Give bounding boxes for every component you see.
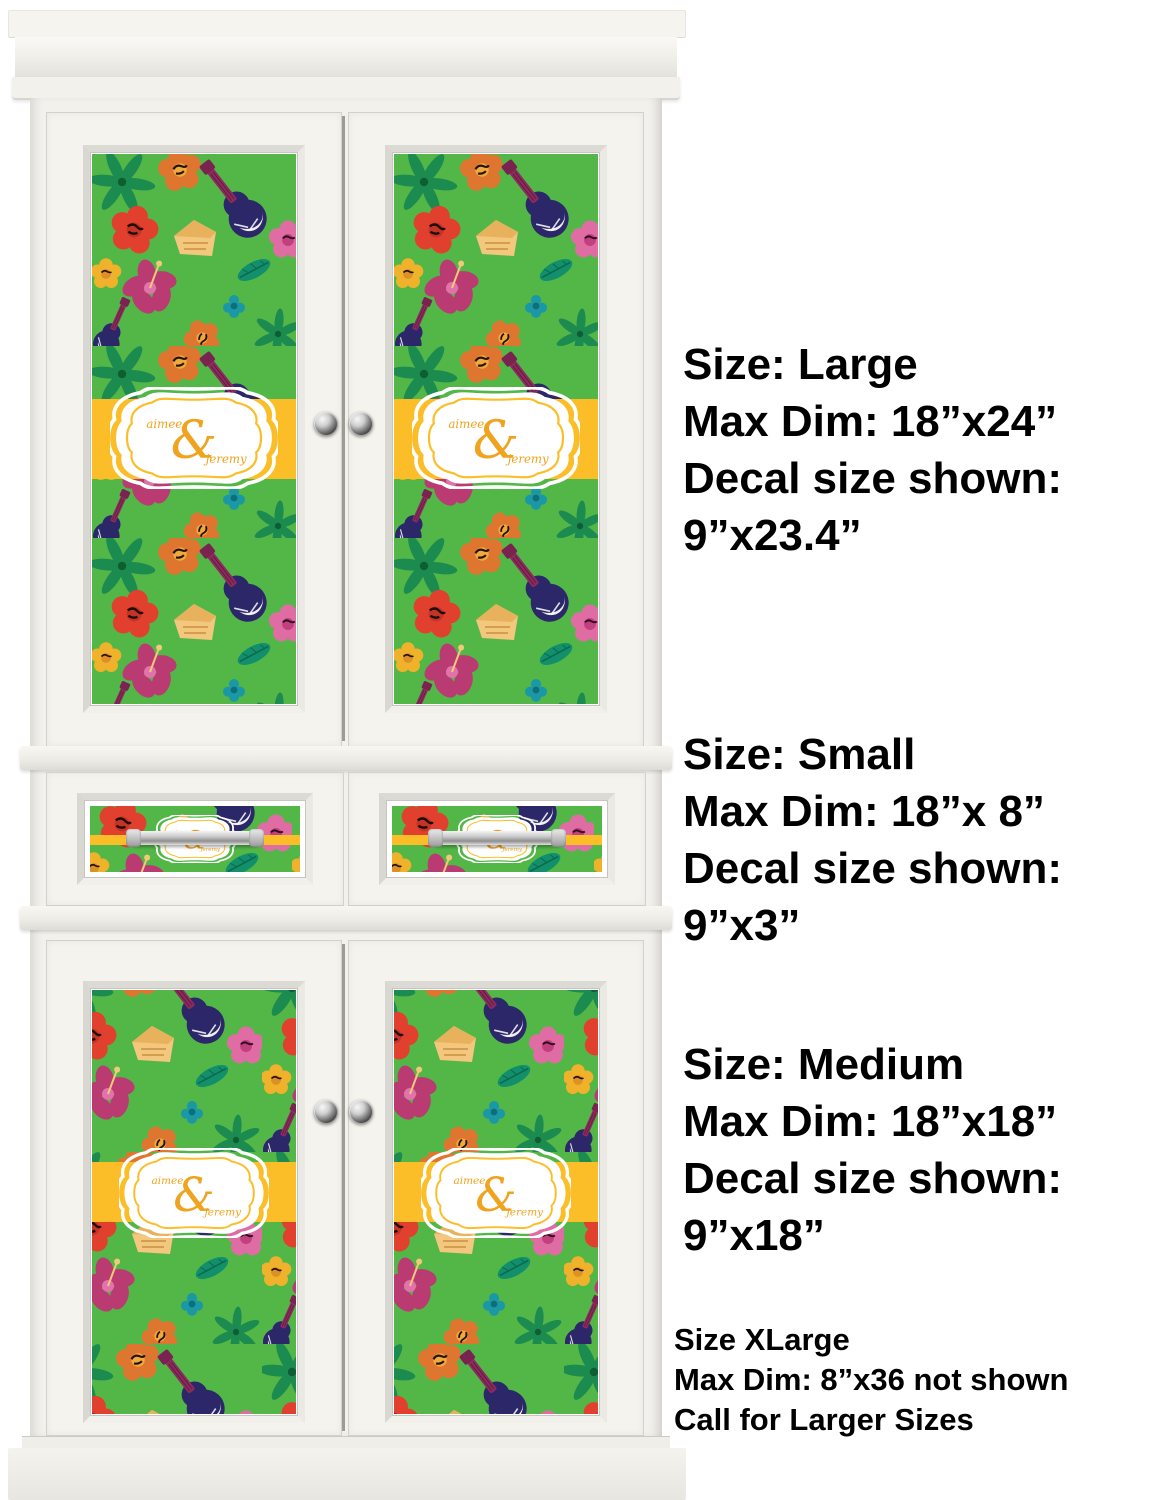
left-drawer: aimee & jeremy [46,772,344,906]
right-drawer: aimee & jeremy [348,772,646,906]
mid-rail-molding [20,746,672,770]
door-knob [349,1100,373,1124]
size-label: Size XLarge [674,1320,1068,1360]
decal-medium-right: aimee & jeremy [394,990,598,1414]
badge-second-name: jeremy [501,847,523,853]
crown-molding-cove [15,37,677,77]
badge-second-name: jeremy [505,452,549,466]
name-badge: aimee & jeremy [119,1148,269,1238]
size-annotation-large: Size: Large Max Dim: 18”x24” Decal size … [683,336,1062,564]
size-label: Size: Large [683,336,1062,393]
decal-large-left: aimee & jeremy [92,154,296,704]
upper-left-door: aimee & jeremy [46,112,342,747]
decal-size-shown-label: Decal size shown: [683,450,1062,507]
drawer-pull [431,831,563,845]
crown-molding-top [8,10,686,38]
decal-size-shown-label: Decal size shown: [683,840,1062,897]
lower-right-door: aimee & jeremy [348,940,644,1436]
decal-size-value: 9”x23.4” [683,507,1062,564]
decal-size-value: 9”x18” [683,1207,1062,1264]
upper-door-gap [342,116,345,741]
door-knob [314,412,338,436]
badge-second-name: jeremy [203,1207,243,1219]
size-annotation-xlarge: Size XLarge Max Dim: 8”x36 not shown Cal… [674,1320,1068,1440]
lower-door-gap [342,944,345,1431]
crown-molding-lip [12,77,680,100]
decal-medium-left: aimee & jeremy [92,990,296,1414]
door-knob [314,1100,338,1124]
name-badge: aimee & jeremy [412,387,580,489]
size-label: Size: Small [683,726,1062,783]
lower-right-door-panel: aimee & jeremy [385,981,607,1423]
door-knob [349,412,373,436]
name-badge: aimee & jeremy [421,1148,571,1238]
decal-large-right: aimee & jeremy [394,154,598,704]
lower-left-door: aimee & jeremy [46,940,342,1436]
lower-rail-molding [20,906,672,930]
max-dim: Max Dim: 18”x 8” [683,783,1062,840]
upper-right-door: aimee & jeremy [348,112,644,747]
badge-second-name: jeremy [203,452,247,466]
drawer-pull [129,831,261,845]
name-badge: aimee & jeremy [110,387,278,489]
badge-second-name: jeremy [505,1207,545,1219]
max-dim: Max Dim: 18”x18” [683,1093,1062,1150]
size-annotation-small: Size: Small Max Dim: 18”x 8” Decal size … [683,726,1062,954]
call-for-larger-sizes: Call for Larger Sizes [674,1400,1068,1440]
upper-left-door-panel: aimee & jeremy [83,145,305,713]
product-size-illustration: aimee & jeremy aimee & jeremy [0,0,1151,1500]
max-dim: Max Dim: 8”x36 not shown [674,1360,1068,1400]
badge-second-name: jeremy [199,847,221,853]
lower-left-door-panel: aimee & jeremy [83,981,305,1423]
size-annotation-medium: Size: Medium Max Dim: 18”x18” Decal size… [683,1036,1062,1264]
max-dim: Max Dim: 18”x24” [683,393,1062,450]
decal-size-shown-label: Decal size shown: [683,1150,1062,1207]
decal-size-value: 9”x3” [683,897,1062,954]
base-plinth [8,1448,686,1500]
upper-right-door-panel: aimee & jeremy [385,145,607,713]
size-label: Size: Medium [683,1036,1062,1093]
